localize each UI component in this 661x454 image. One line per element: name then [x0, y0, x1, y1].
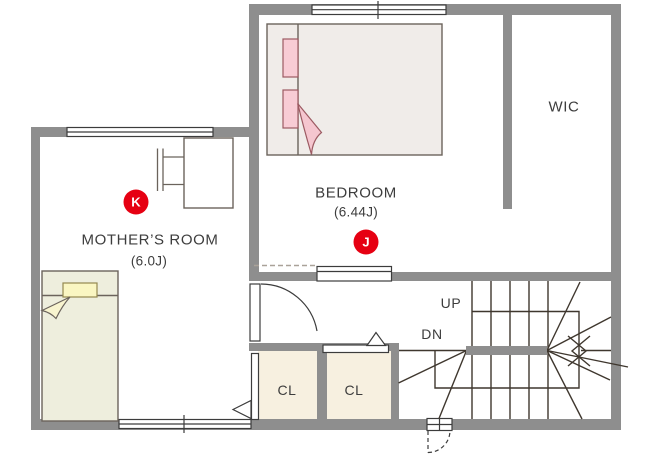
door-swing-arc: [261, 284, 317, 331]
door-leaf: [250, 284, 260, 341]
bed-pillow-1: [283, 39, 298, 77]
staircase: [399, 281, 629, 419]
marker-j-badge: J: [354, 230, 379, 255]
bedroom-top-window: [312, 1, 446, 19]
mothers-room-size: (6.0J): [131, 254, 167, 269]
left-wall: [31, 127, 40, 419]
desk: [184, 138, 233, 208]
mothers-bed-pillow: [63, 283, 97, 297]
bed-pillow-2: [283, 90, 298, 128]
closet-1-label: CL: [277, 382, 296, 398]
stairs-down-label: DN: [421, 326, 442, 342]
closet-2-direction-triangle: [367, 333, 386, 346]
stair-exterior-door: [427, 419, 452, 453]
bedroom-size: (6.44J): [334, 205, 378, 220]
right-wall: [611, 4, 621, 430]
marker-k-badge: K: [124, 190, 149, 215]
stairs-up-label: UP: [441, 295, 462, 311]
mothers-room-door: [250, 284, 317, 341]
stair-landing-bar: [466, 346, 547, 355]
mothers-room-bottom-window: [119, 415, 251, 433]
closet-divider-wall: [317, 351, 327, 419]
door-swing-arc-dashed: [428, 431, 450, 453]
stair-west-wall: [391, 343, 399, 419]
floor-plan-drawing: [0, 0, 661, 454]
closet-1-direction-triangle: [233, 401, 251, 419]
closet-2-label: CL: [344, 382, 363, 398]
mothers-room-top-window: [67, 128, 213, 137]
closet-2-door: [323, 345, 389, 353]
wic-label: WIC: [549, 99, 580, 116]
mothers-room-label: MOTHER’S ROOM: [82, 232, 219, 249]
hall-top-wall: [249, 272, 611, 281]
bedroom-label: BEDROOM: [315, 185, 397, 202]
closet-1-door: [252, 354, 259, 420]
chair: [158, 149, 185, 192]
floor-plan: MOTHER’S ROOM (6.0J) BEDROOM (6.44J) WIC…: [0, 0, 661, 454]
bedroom-west-wall: [249, 4, 259, 272]
wic-west-wall: [503, 15, 512, 209]
bedroom-sliding-door: [317, 267, 392, 282]
